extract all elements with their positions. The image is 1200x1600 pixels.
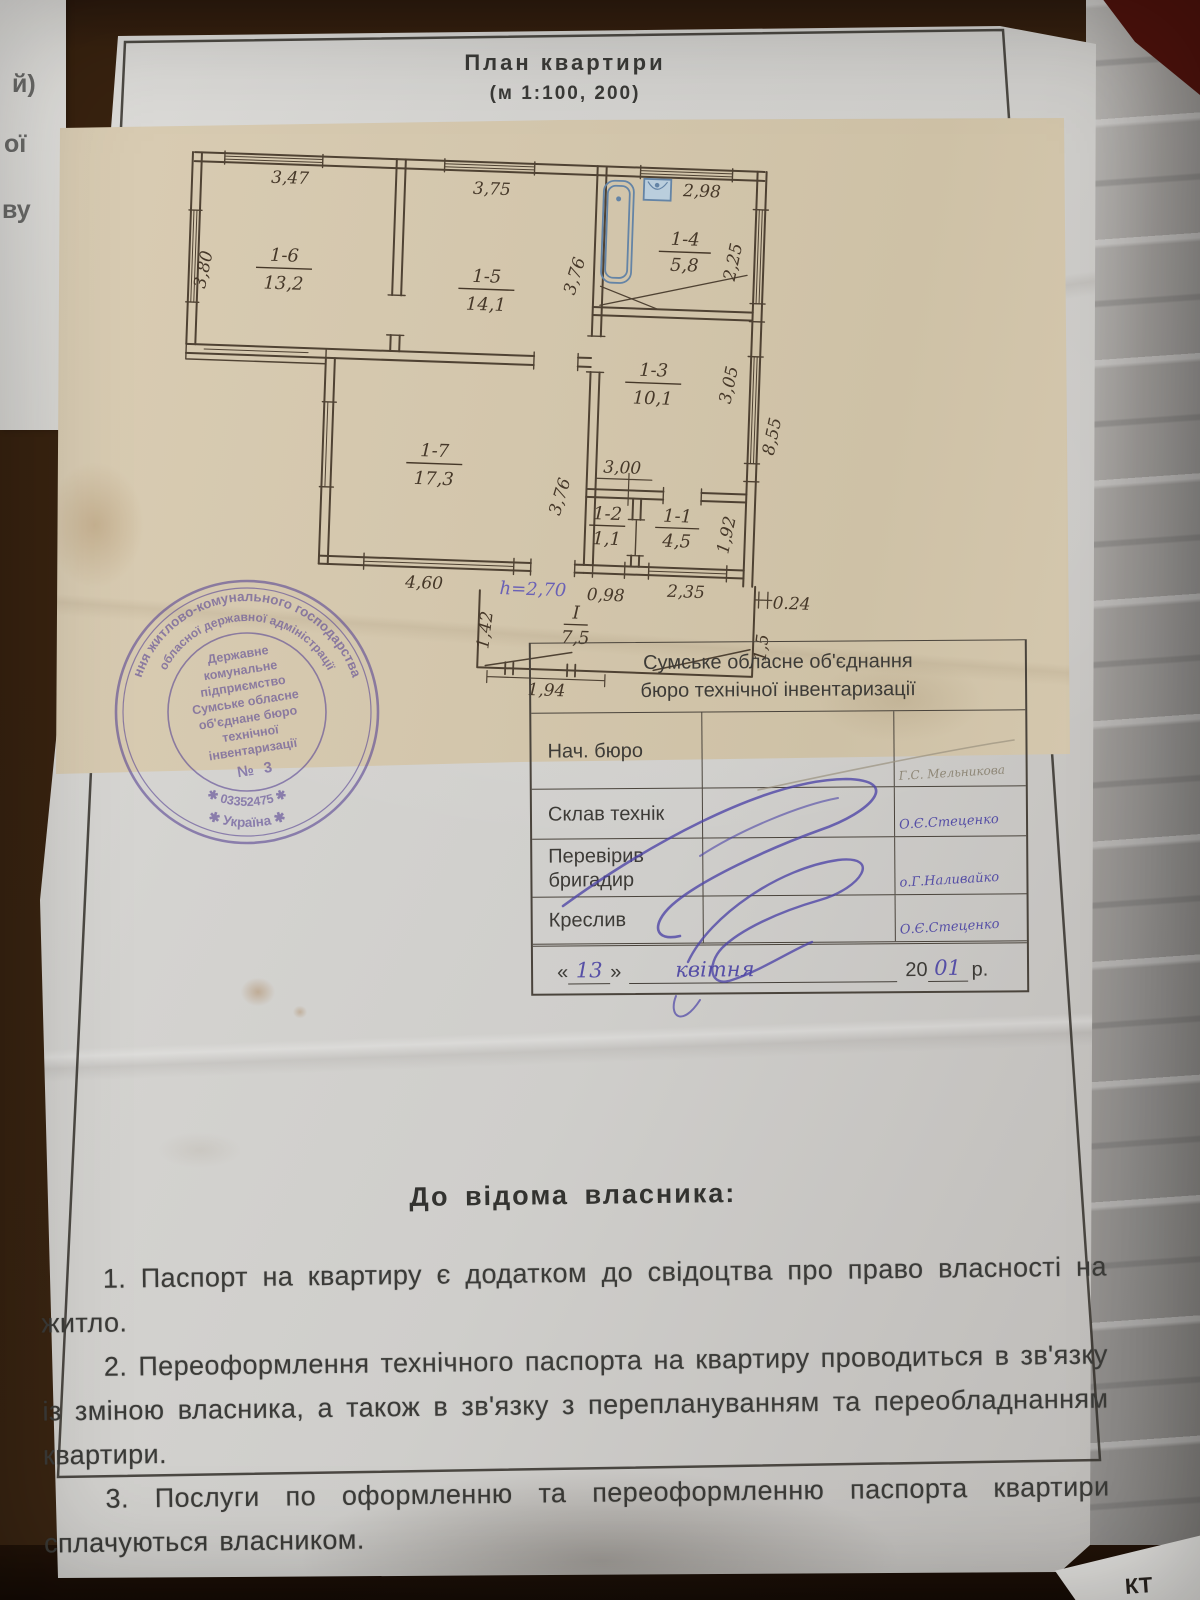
signature-cell <box>702 787 894 837</box>
date-row: « 13 » квітня 20 01 р. <box>533 940 1027 993</box>
signature-cell <box>702 837 894 895</box>
title-line1: План квартири <box>150 50 980 76</box>
bti-signature-table: Сумське обласне об'єднання бюро технічно… <box>529 639 1029 995</box>
handwritten-name: О.Є.Стеценко <box>899 812 999 833</box>
handwritten-name: о.Г.Наливайко <box>899 870 999 891</box>
notice-item-1: 1. Паспорт на квартиру є додатком до сві… <box>41 1244 1108 1345</box>
date-year-underline: 01 <box>927 956 967 982</box>
owner-notice: До відома власника: 1. Паспорт на кварти… <box>40 1174 1111 1566</box>
date-year-prefix: 20 <box>905 959 927 982</box>
name-cell: О.Є.Стеценко <box>895 894 1031 941</box>
date-suffix: р. <box>971 959 988 982</box>
signature-cell <box>703 895 895 942</box>
edge-text-fragment: ву <box>2 196 31 225</box>
date-day: 13 <box>576 958 603 982</box>
edge-text-fragment: й) <box>12 70 36 99</box>
signature-cell <box>701 711 894 787</box>
row-label: Склав технік <box>532 789 702 839</box>
table-row: Нач. бюро Г.С. Мельникова <box>531 709 1026 788</box>
date-month: квітня <box>675 957 754 982</box>
document-photo: й) ої ву План квартири (м 1:100, 200) <box>0 0 1200 1600</box>
row-label: Перевірив бригадир <box>532 839 702 897</box>
notice-item-3: 3. Послуги по оформленню та переоформлен… <box>43 1464 1110 1565</box>
row-label: Креслив <box>533 897 703 944</box>
handwritten-name: О.Є.Стеценко <box>899 917 999 938</box>
table-row: Перевірив бригадир о.Г.Наливайко <box>532 835 1026 896</box>
org-line2: бюро технічної інвентаризації <box>531 674 1025 705</box>
name-cell: О.Є.Стеценко <box>894 786 1030 836</box>
table-row: Креслив О.Є.Стеценко <box>533 893 1027 943</box>
date-day-underline: 13 <box>568 958 610 984</box>
quote-close: » <box>610 961 621 984</box>
page-title: План квартири (м 1:100, 200) <box>150 50 980 105</box>
title-scale: (м 1:100, 200) <box>150 83 980 105</box>
underlying-page: й) ої ву <box>0 0 66 430</box>
row-label: Нач. бюро <box>531 713 702 789</box>
table-row: Склав технік О.Є.Стеценко <box>532 785 1026 838</box>
name-cell: Г.С. Мельникова <box>893 710 1030 786</box>
name-cell: о.Г.Наливайко <box>894 836 1030 894</box>
edge-text-fragment: ої <box>4 130 26 159</box>
date-year: 01 <box>934 956 961 980</box>
organization-header: Сумське обласне об'єднання бюро технічно… <box>531 640 1025 712</box>
date-month-underline: квітня <box>629 956 897 984</box>
scrap-text-fragment: КТ <box>1124 1572 1153 1600</box>
org-line1: Сумське обласне об'єднання <box>531 646 1025 677</box>
quote-open: « <box>557 961 568 984</box>
notice-item-2: 2. Переоформлення технічного паспорта на… <box>42 1332 1110 1477</box>
handwritten-name: Г.С. Мельникова <box>898 763 1005 783</box>
